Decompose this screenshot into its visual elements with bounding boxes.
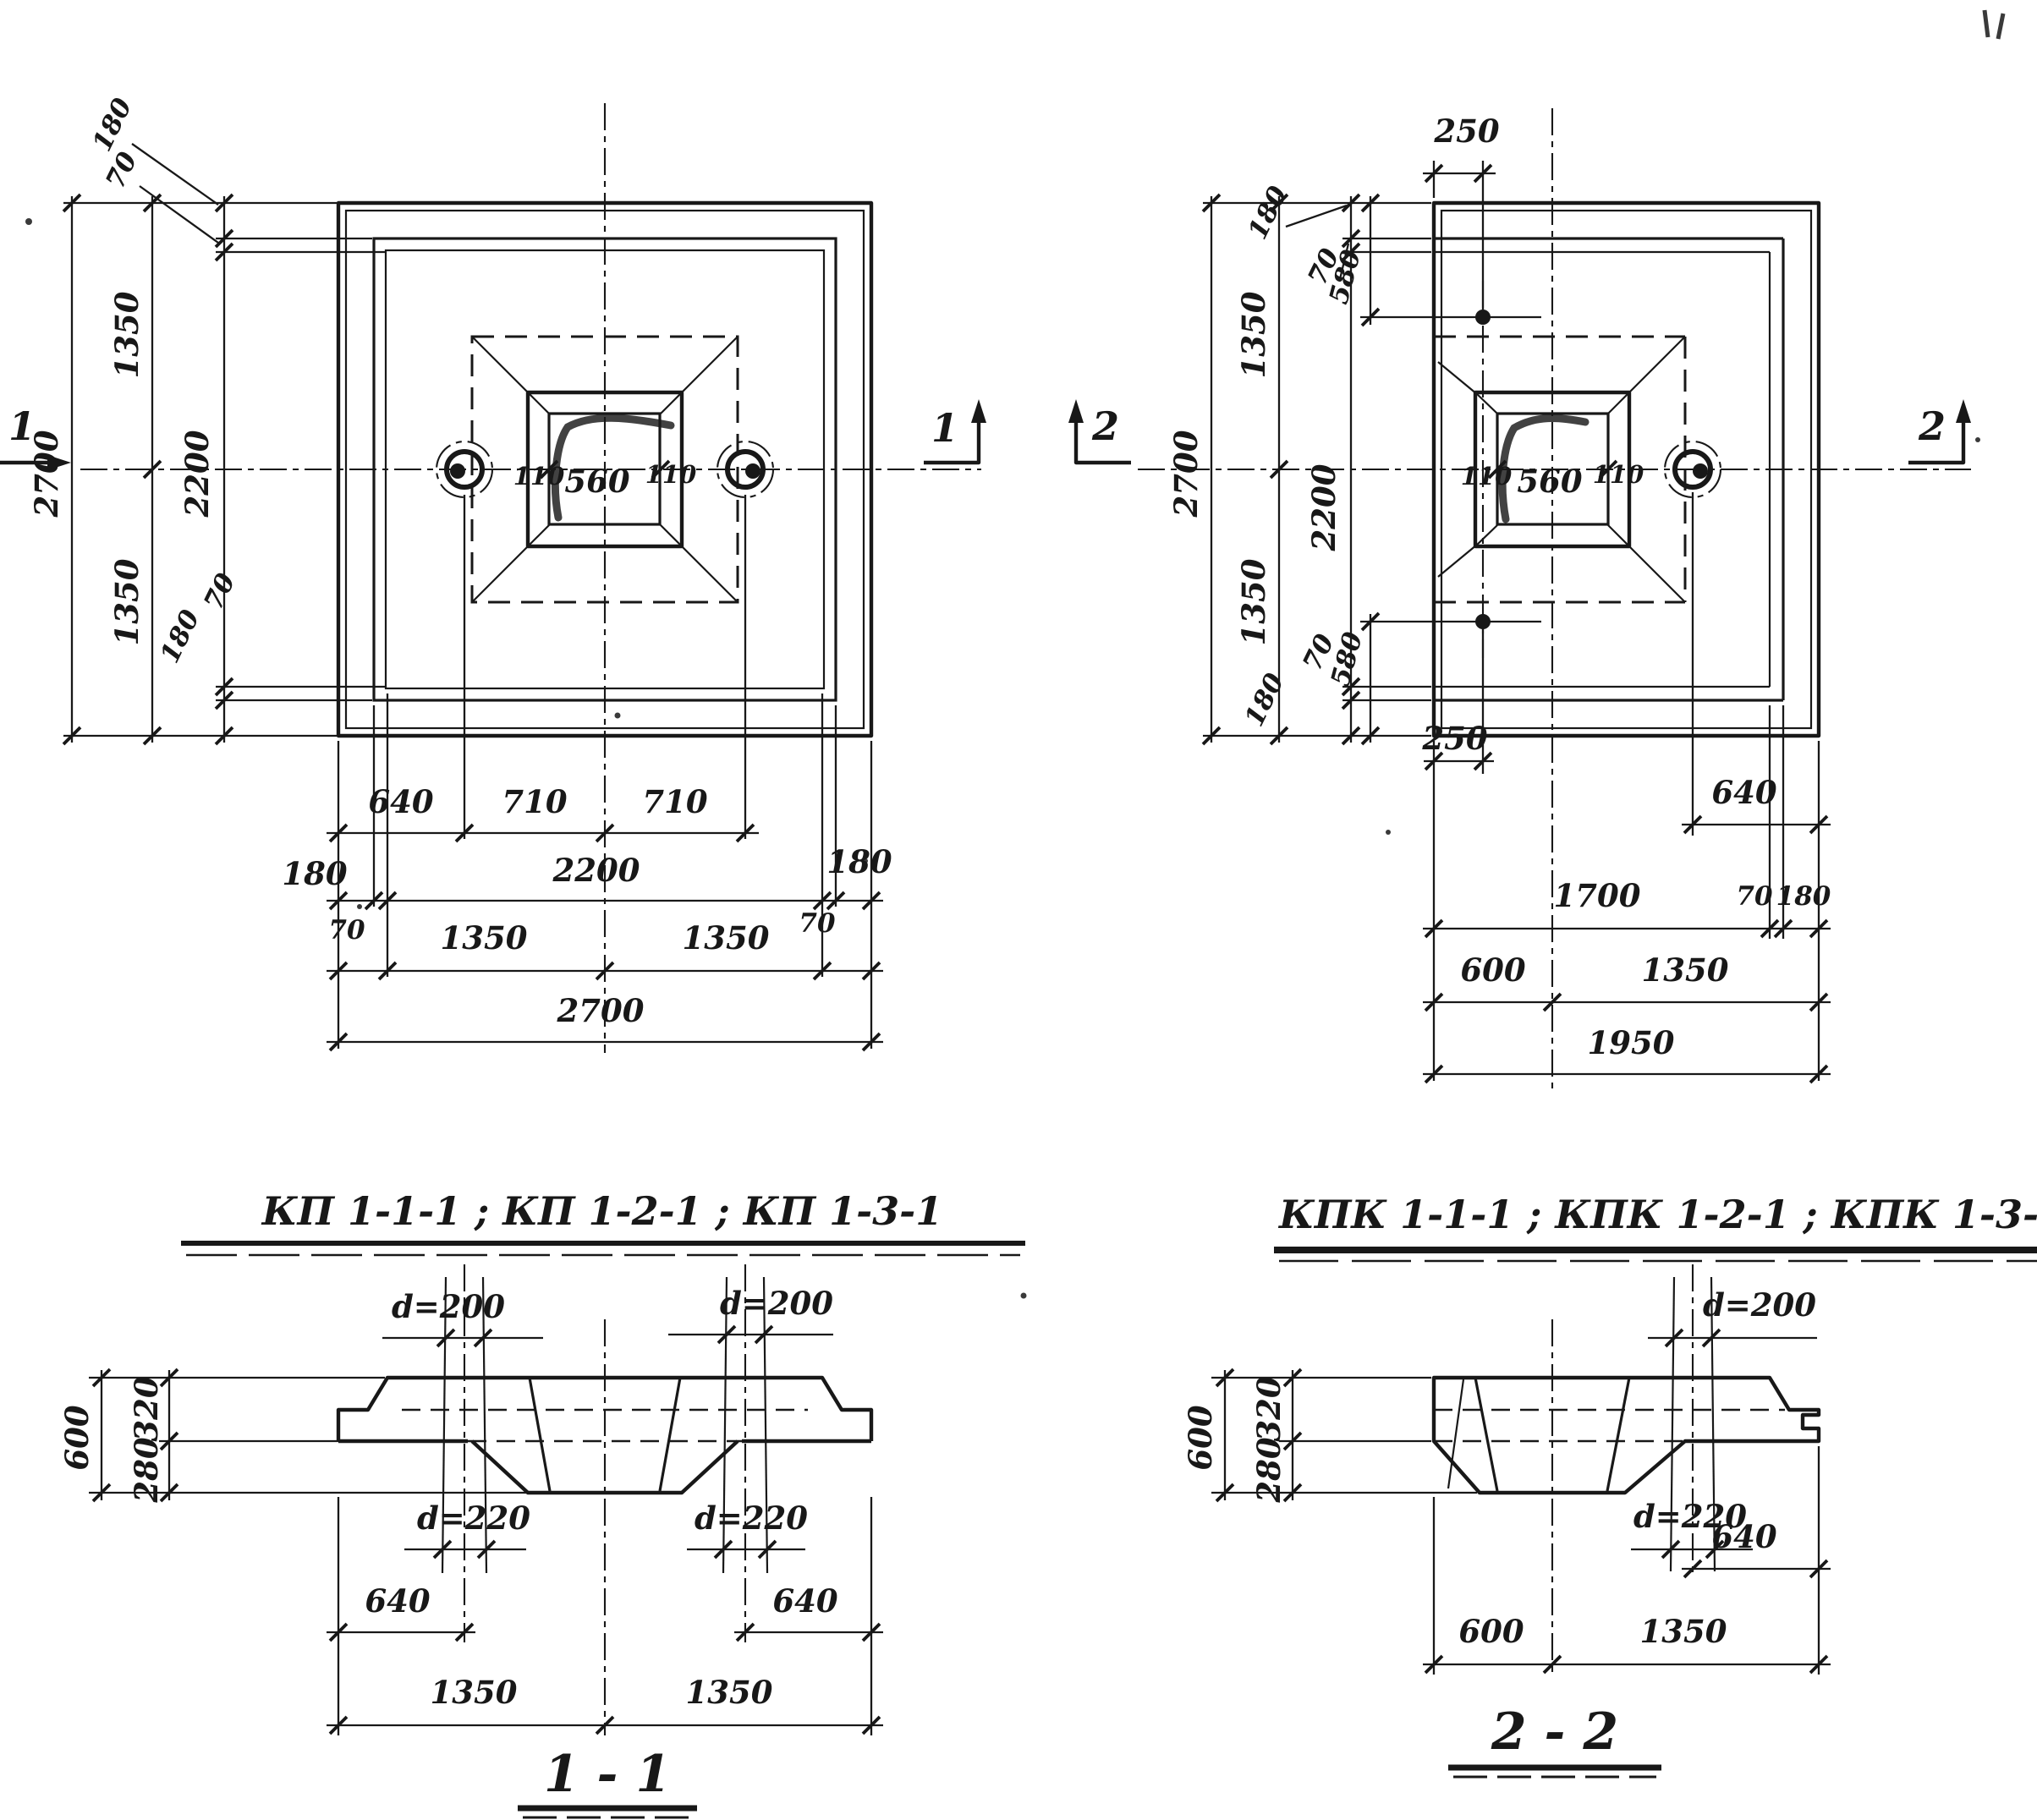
dim-kp-1350-v-bot: 1350 — [108, 558, 145, 645]
dim-s11-280: 280 — [128, 1437, 165, 1503]
dim-s22-600-b: 600 — [1458, 1613, 1524, 1650]
s22-socket-wall-left — [1475, 1378, 1497, 1491]
s11-socket-wall-right — [660, 1378, 680, 1491]
dim-kp-710-left: 710 — [502, 783, 567, 820]
dim-s22-280: 280 — [1250, 1437, 1288, 1503]
title-section-1-1: 1 - 1 — [544, 1745, 671, 1804]
s22-socket-wall-right — [1607, 1378, 1629, 1491]
dim-s11-d220-right: d=220 — [695, 1499, 808, 1537]
dim-s22-1350-b: 1350 — [1640, 1613, 1727, 1650]
title-kp-group: КП 1-1-1 ; КП 1-2-1 ; КП 1-3-1 — [261, 1188, 943, 1234]
s11-socket-wall-left — [530, 1378, 550, 1491]
kpk-dimensions: 250 2700 1350 1350 2200 180 70 — [1167, 112, 1831, 1083]
dim-kp-110-right: 110 — [645, 460, 697, 489]
group-titles: КП 1-1-1 ; КП 1-2-1 ; КП 1-3-1 КПК 1-1-1… — [181, 1188, 2037, 1261]
dim-kpk-600: 600 — [1460, 951, 1525, 989]
dim-kpk-110-right: 110 — [1593, 460, 1644, 489]
dim-s11-1350-left: 1350 — [431, 1674, 518, 1711]
dim-kpk-2700-v: 2700 — [1167, 430, 1205, 518]
dim-kp-2200-b: 2200 — [552, 852, 640, 889]
title-section-2-2: 2 - 2 — [1491, 1702, 1618, 1762]
dim-kp-2700-b: 2700 — [557, 992, 645, 1029]
dim-kp-1350-v-top: 1350 — [108, 291, 145, 378]
dim-kp-2200-v: 2200 — [178, 430, 216, 518]
dim-kpk-70-b: 70 — [1736, 881, 1773, 912]
dim-kp-710-right: 710 — [642, 783, 707, 820]
kp-section-markers: 1 1 — [0, 399, 986, 470]
plan-view-kp: 2700 1350 1350 2200 180 70 70 180 110 56… — [0, 93, 986, 1053]
dim-kp-180-bot: 180 — [155, 605, 206, 667]
dim-kp-180-top: 180 — [87, 93, 139, 156]
plan-view-kpk: 250 2700 1350 1350 2200 180 70 — [1068, 108, 1971, 1089]
dim-kp-70-top: 70 — [100, 147, 143, 194]
dim-kpk-1350-v-bot: 1350 — [1235, 558, 1272, 645]
dim-kpk-180-bot: 180 — [1239, 668, 1291, 731]
dim-kp-110-left: 110 — [513, 462, 565, 491]
section-2-2: d=200 d=220 600 320 280 640 600 1350 — [1182, 1264, 1831, 1777]
dim-kp-70-bot: 70 — [198, 568, 241, 615]
dim-kp-1350-br: 1350 — [683, 919, 770, 957]
dim-s11-600: 600 — [58, 1405, 96, 1470]
s22-dimensions: d=200 d=220 600 320 280 640 600 1350 — [1182, 1286, 1831, 1675]
s22-outline — [1434, 1378, 1819, 1493]
section-1-1: d=200 d=200 d=220 d=220 600 320 280 — [58, 1264, 883, 1817]
dim-s11-d200-left: d=200 — [392, 1288, 505, 1325]
dim-kpk-180-b: 180 — [1776, 881, 1831, 912]
dim-kp-180-bl: 180 — [282, 855, 347, 892]
dim-s22-d200: d=200 — [1703, 1286, 1816, 1324]
dim-s11-d200-right: d=200 — [720, 1285, 833, 1322]
dim-kpk-1700: 1700 — [1554, 877, 1641, 914]
dim-kp-70-br: 70 — [799, 908, 836, 939]
dim-kp-1350-bl: 1350 — [441, 919, 528, 957]
dim-kpk-180-top: 180 — [1243, 181, 1294, 244]
dim-kpk-2200-v: 2200 — [1305, 463, 1342, 551]
dim-s11-320: 320 — [128, 1376, 165, 1441]
dim-kpk-1350-v-top: 1350 — [1235, 291, 1272, 378]
s11-dimensions: d=200 d=200 d=220 d=220 600 320 280 — [58, 1285, 883, 1735]
dim-s22-640: 640 — [1711, 1518, 1776, 1555]
section-marker-1-left: 1 — [8, 403, 36, 449]
title-kpk-group: КПК 1-1-1 ; КПК 1-2-1 ; КПК 1-3-1 — [1277, 1192, 2037, 1237]
dim-kpk-1350: 1350 — [1642, 951, 1729, 989]
dim-kpk-560: 560 — [1517, 463, 1582, 500]
dim-s11-640-left: 640 — [365, 1582, 430, 1620]
dim-kp-70-bl: 70 — [328, 915, 365, 946]
dim-s22-320: 320 — [1250, 1376, 1288, 1441]
dim-kpk-110-left: 110 — [1461, 462, 1513, 491]
kp-dimensions: 2700 1350 1350 2200 180 70 70 180 110 56… — [28, 93, 892, 1050]
dim-kpk-1950: 1950 — [1588, 1024, 1675, 1061]
dim-s11-d220-left: d=220 — [417, 1499, 530, 1537]
foundation-pad-drawing: 2700 1350 1350 2200 180 70 70 180 110 56… — [0, 0, 2037, 1820]
dim-kp-640: 640 — [368, 783, 433, 820]
dim-kpk-250-top: 250 — [1433, 112, 1499, 150]
dim-kpk-250-bot: 250 — [1421, 720, 1487, 757]
dim-s22-600: 600 — [1182, 1405, 1219, 1470]
dim-kp-180-br: 180 — [826, 843, 892, 880]
dim-s11-1350-right: 1350 — [686, 1674, 773, 1711]
section-marker-1-right: 1 — [931, 405, 958, 451]
dim-s11-640-right: 640 — [772, 1582, 837, 1620]
section-marker-2-left: 2 — [1091, 403, 1119, 449]
dim-kp-560: 560 — [564, 463, 629, 500]
section-marker-2-right: 2 — [1918, 403, 1946, 449]
dim-kpk-640: 640 — [1711, 774, 1776, 811]
